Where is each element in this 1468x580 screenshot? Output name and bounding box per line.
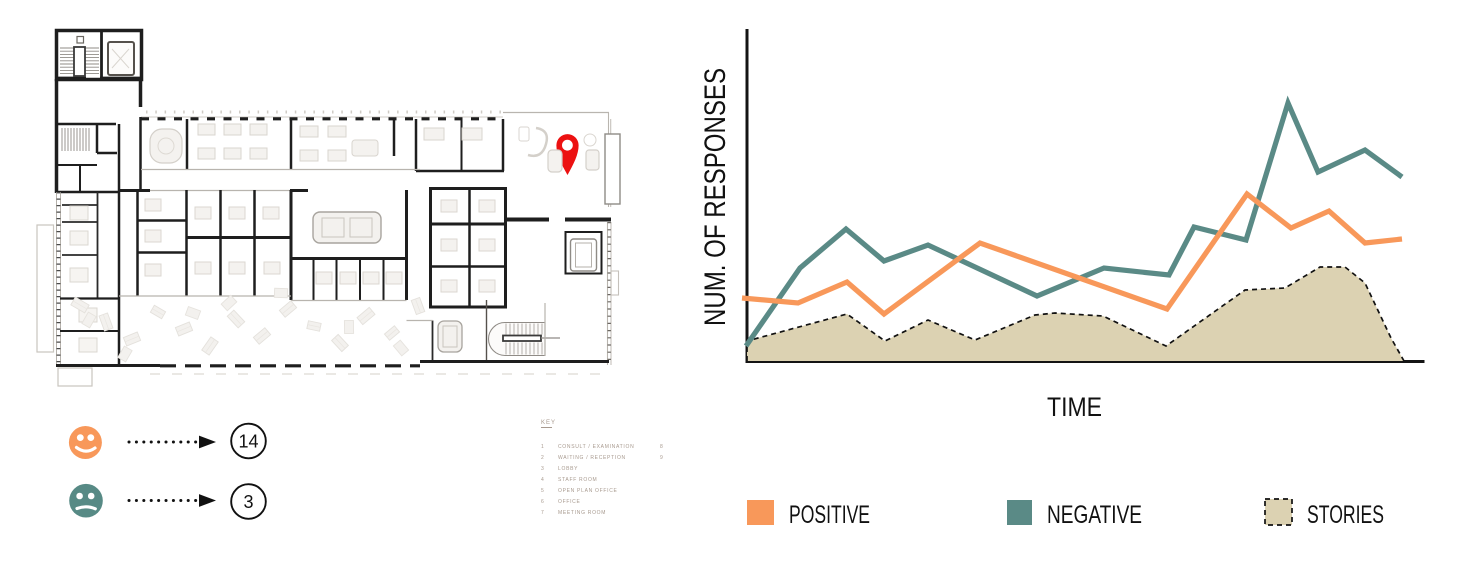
- svg-text:3: 3: [243, 492, 253, 512]
- svg-text:CONSULT / EXAMINATION: CONSULT / EXAMINATION: [558, 444, 634, 450]
- svg-text:4: 4: [541, 477, 544, 483]
- svg-text:WAITING / RECEPTION: WAITING / RECEPTION: [558, 455, 626, 461]
- svg-text:OPEN PLAN OFFICE: OPEN PLAN OFFICE: [558, 488, 618, 494]
- svg-text:OFFICE: OFFICE: [558, 499, 581, 505]
- svg-text:KEY: KEY: [541, 420, 556, 426]
- svg-text:3: 3: [541, 466, 544, 472]
- svg-text:STAFF ROOM: STAFF ROOM: [558, 477, 597, 483]
- svg-text:LOBBY: LOBBY: [558, 466, 578, 472]
- svg-text:1: 1: [541, 444, 544, 450]
- svg-text:5: 5: [541, 488, 544, 494]
- svg-text:TIME: TIME: [1047, 392, 1102, 422]
- svg-text:NUM. OF RESPONSES: NUM. OF RESPONSES: [699, 68, 732, 326]
- svg-text:6: 6: [541, 499, 544, 505]
- svg-text:14: 14: [238, 432, 258, 452]
- svg-text:STORIES: STORIES: [1307, 501, 1384, 529]
- svg-text:2: 2: [541, 455, 544, 461]
- svg-text:NEGATIVE: NEGATIVE: [1047, 501, 1142, 529]
- svg-text:9: 9: [660, 455, 663, 461]
- svg-text:POSITIVE: POSITIVE: [789, 501, 870, 529]
- svg-text:MEETING ROOM: MEETING ROOM: [558, 510, 606, 516]
- svg-text:8: 8: [660, 444, 663, 450]
- svg-text:7: 7: [541, 510, 544, 516]
